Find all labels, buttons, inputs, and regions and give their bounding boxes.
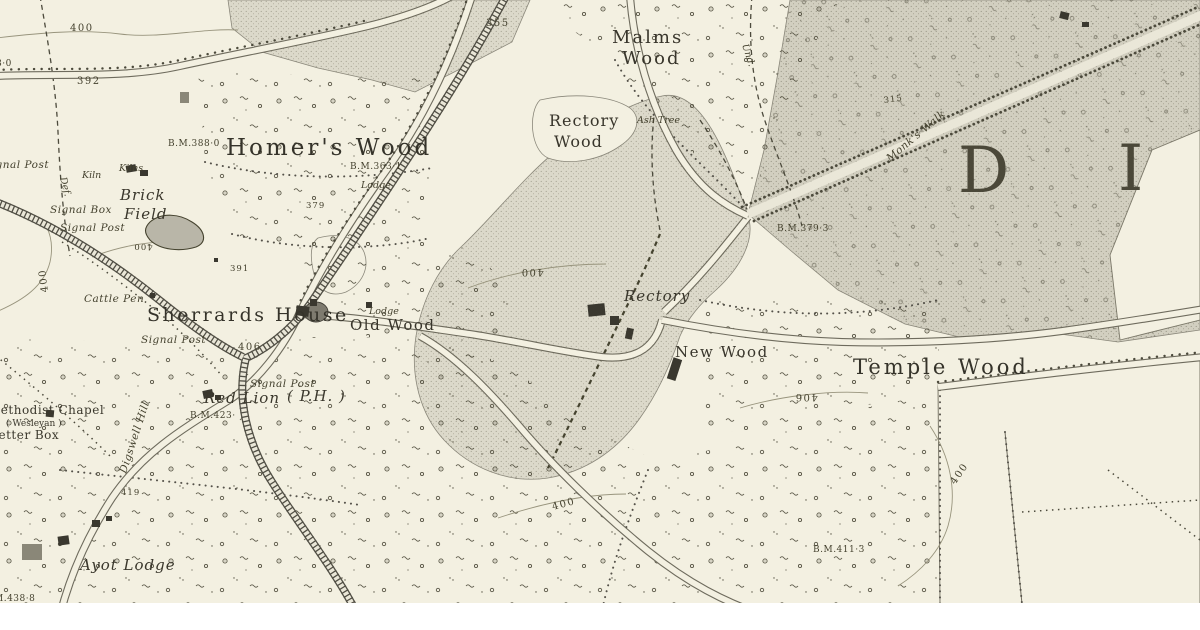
height-392: 392 <box>77 76 101 87</box>
height-355: 355 <box>486 18 510 29</box>
benchmark-363: B.M.363·1 <box>350 162 402 172</box>
label-old-wood: Old Wood <box>350 316 436 334</box>
label-rectory: Rectory <box>623 287 690 305</box>
label-lodge-north: Lodge <box>360 180 391 191</box>
label-malms-2: Wood <box>622 48 680 69</box>
label-brick-1: Brick <box>119 186 165 204</box>
height-419: 419 <box>121 488 140 498</box>
label-ayot-lodge: Ayot Lodge <box>78 556 176 574</box>
label-kiln: Kiln <box>81 170 101 181</box>
district-letter-i: I <box>1118 132 1143 206</box>
label-temple-wood: Temple Wood <box>853 355 1029 379</box>
benchmark-411: B.M.411·3 <box>813 545 865 555</box>
height-400-rectory: 400 <box>520 266 544 277</box>
label-homers-wood: Homer's Wood <box>226 135 432 161</box>
height-406-temple: 406 <box>794 391 818 402</box>
fields-bottom-right <box>938 356 1200 604</box>
label-red-lion: Red Lion <box>203 389 280 407</box>
label-methodist-chapel: Methodist Chapel <box>0 403 104 417</box>
benchmark-423: B.M.423· <box>190 411 236 421</box>
benchmark-388: B.M.388·0 <box>168 139 220 149</box>
label-brick-2: Field <box>123 205 167 223</box>
map-frame: D I Homer's Wood Malms Wood Rectory Wood… <box>0 0 1200 630</box>
height-406-junction: 406 <box>238 342 262 353</box>
label-rectory-wood-1: Rectory <box>549 111 619 130</box>
label-malms-1: Malms <box>612 27 683 48</box>
label-signal-box: Signal Box <box>50 204 112 216</box>
label-new-wood: New Wood <box>675 343 769 361</box>
label-signal-post-mid: Signal Post <box>141 334 206 346</box>
height-400-nw: 400 <box>70 23 94 34</box>
height-400-brick: 400 <box>133 241 152 251</box>
bottom-margin <box>0 603 1200 630</box>
label-ash-tree: Ash Tree <box>636 115 680 126</box>
label-letter-box: Letter Box <box>0 428 59 442</box>
label-signal-post-nw: Signal Post <box>0 159 49 171</box>
label-rectory-wood-2: Wood <box>554 132 603 151</box>
label-signal-post-w: Signal Post <box>60 222 125 234</box>
district-letter-d: D <box>958 134 1009 208</box>
height-379: 379 <box>306 201 325 211</box>
benchmark-partial-nw: 8·0 <box>0 59 12 69</box>
label-signal-post-s: Signal Post <box>250 378 315 390</box>
benchmark-438: M.438·8 <box>0 594 35 604</box>
label-lodge-old-wood: Lodge <box>368 306 399 317</box>
label-kilns: Kilns <box>118 163 143 174</box>
benchmark-379: B.M.379·3 <box>777 224 829 234</box>
label-sherrards-house: Sherrards House <box>147 304 349 326</box>
height-391: 391 <box>230 264 249 274</box>
map-canvas: D I Homer's Wood Malms Wood Rectory Wood… <box>0 0 1200 630</box>
label-cattle-pen: Cattle Pen <box>84 293 144 305</box>
